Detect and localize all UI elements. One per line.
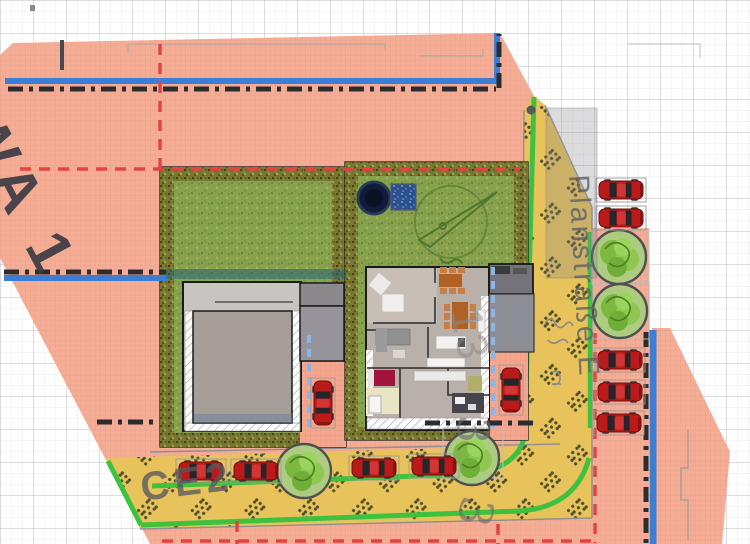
tree[interactable] <box>592 230 646 284</box>
lounge-set <box>382 294 404 312</box>
car[interactable] <box>349 456 399 480</box>
car[interactable] <box>409 454 459 478</box>
car[interactable] <box>596 178 646 202</box>
survey-mark <box>60 40 64 70</box>
annex-room-upper <box>300 283 344 306</box>
car[interactable] <box>231 459 281 483</box>
pool[interactable] <box>391 184 416 210</box>
selection-handle[interactable] <box>527 106 536 115</box>
zone-right-area[interactable] <box>652 328 730 544</box>
wardrobe <box>414 371 466 381</box>
car-driveway-left[interactable] <box>311 378 335 428</box>
car-driveway-right[interactable] <box>499 365 523 415</box>
bathtub <box>369 396 381 413</box>
site-plan-canvas[interactable]: WA 1 Planstraße E CE2 13 3 3 <box>0 0 750 544</box>
plan-drawing <box>0 0 750 544</box>
house-number-label: 13 <box>440 304 498 365</box>
dining-table-terrace <box>439 274 462 287</box>
pond[interactable] <box>358 182 390 214</box>
lot-number-upper: 3 <box>446 414 499 446</box>
car[interactable] <box>594 411 644 435</box>
car[interactable] <box>596 206 646 230</box>
shadow-band <box>194 414 292 423</box>
garage[interactable] <box>489 264 534 352</box>
hedge-left <box>160 167 174 447</box>
car[interactable] <box>595 380 645 404</box>
hedge-bottom <box>160 433 306 447</box>
tree[interactable] <box>277 444 331 498</box>
annex-room-lower <box>300 306 344 361</box>
hedge-left <box>345 162 358 433</box>
